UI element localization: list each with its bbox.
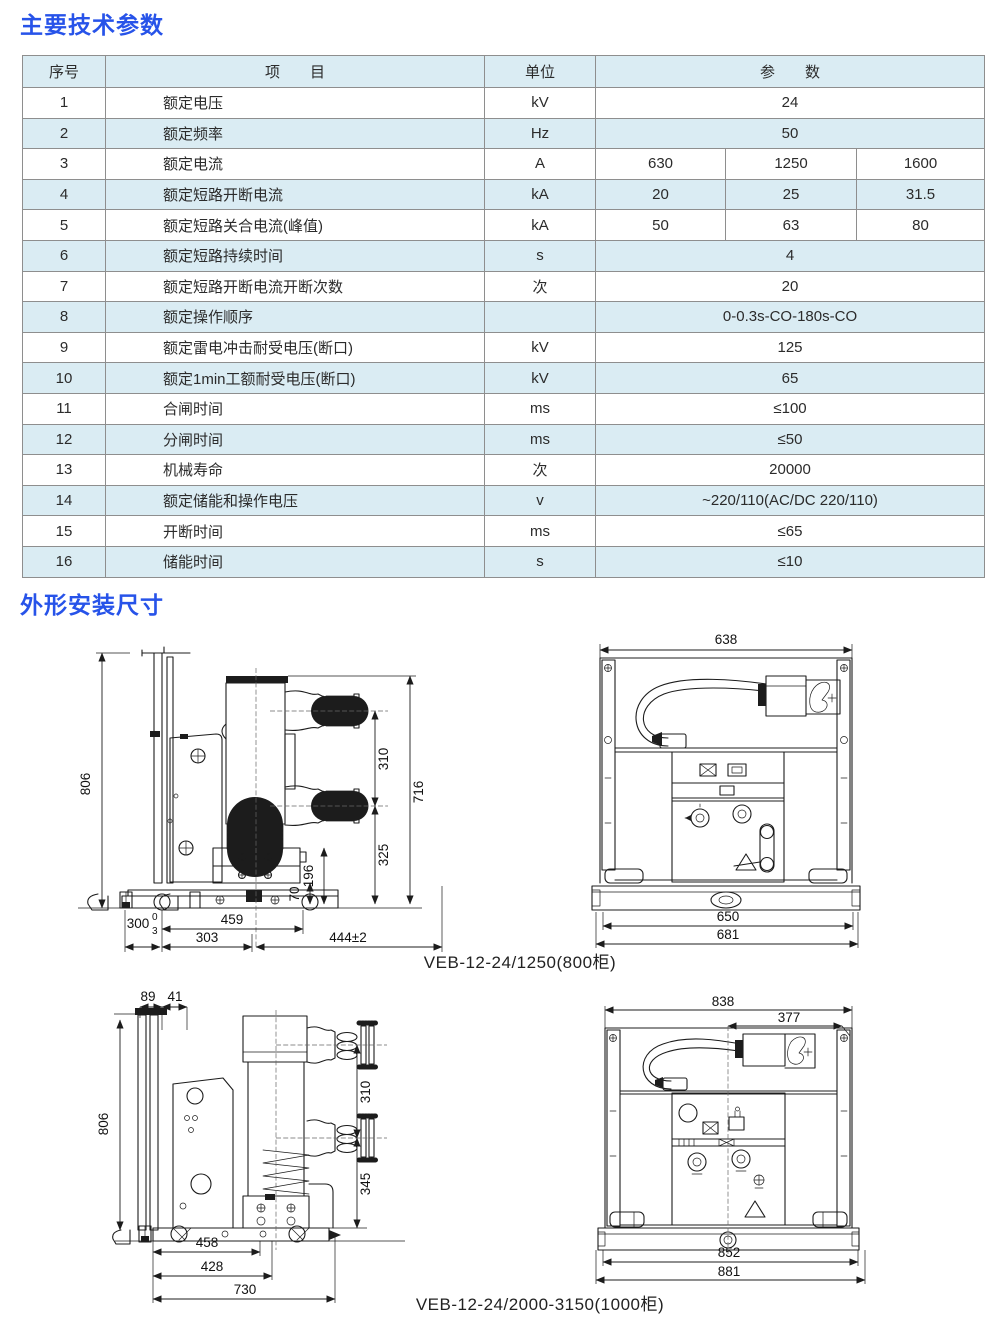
cell-value: 0-0.3s-CO-180s-CO [596,302,985,333]
cell-unit: Hz [485,118,596,149]
cell-unit: kV [485,363,596,394]
drawing-side-view-800: 806 310 325 716 196 70 459 303 444±2 300… [70,626,540,958]
cell-value: 125 [596,332,985,363]
cell-value: 50 [596,210,726,241]
cell-no: 7 [23,271,106,302]
cell-item: 开断时间 [106,516,485,547]
cell-unit: kA [485,210,596,241]
dim-label: 838 [712,996,735,1009]
cell-no: 11 [23,393,106,424]
cell-unit: v [485,485,596,516]
table-row: 14 额定储能和操作电压 v ~220/110(AC/DC 220/110) [23,485,985,516]
cell-unit: 次 [485,271,596,302]
cell-value: 4 [596,240,985,271]
cell-value: 31.5 [857,179,985,210]
cell-no: 14 [23,485,106,516]
dim-tolerance-bottom: 3 [152,926,158,937]
dim-label: 41 [167,989,182,1004]
cell-no: 9 [23,332,106,363]
dim-label: 345 [358,1173,373,1196]
table-row: 9 额定雷电冲击耐受电压(断口) kV 125 [23,332,985,363]
dim-label: 881 [718,1264,741,1279]
table-row: 12 分闸时间 ms ≤50 [23,424,985,455]
drawing-side-view-1000: 89 41 806 310 345 458 428 730 [95,988,480,1306]
cell-no: 2 [23,118,106,149]
table-row: 11 合闸时间 ms ≤100 [23,393,985,424]
cell-unit: kA [485,179,596,210]
cell-value: 50 [596,118,985,149]
dim-label: 310 [376,748,391,771]
drawing-caption-800: VEB-12-24/1250(800柜) [330,948,710,973]
table-row: 2 额定频率 Hz 50 [23,118,985,149]
cell-no: 5 [23,210,106,241]
table-row: 3 额定电流 A 630 1250 1600 [23,149,985,180]
dim-label: 428 [201,1259,224,1274]
section-title-parameters: 主要技术参数 [20,6,164,40]
breaker-side-outline [88,647,359,910]
drawing-front-view-800: 638 650 681 [588,628,918,958]
table-row: 16 储能时间 s ≤10 [23,546,985,577]
cell-no: 12 [23,424,106,455]
dimension-lines: 838 377 852 881 [596,996,865,1284]
cell-item: 额定短路持续时间 [106,240,485,271]
cell-item: 额定操作顺序 [106,302,485,333]
header-no: 序号 [23,56,106,88]
cell-value: 20 [596,179,726,210]
cell-value: 20 [596,271,985,302]
cell-value: ~220/110(AC/DC 220/110) [596,485,985,516]
dim-label: 716 [411,781,426,804]
dim-label: 310 [358,1081,373,1104]
cell-no: 1 [23,88,106,119]
dim-label: 377 [778,1010,801,1025]
table-row: 13 机械寿命 次 20000 [23,455,985,486]
cell-value: 65 [596,363,985,394]
cell-unit: A [485,149,596,180]
dim-label: 650 [717,909,740,924]
cell-value: 80 [857,210,985,241]
table-row: 5 额定短路关合电流(峰值) kA 50 63 80 [23,210,985,241]
cell-value: 1600 [857,149,985,180]
table-row: 10 额定1min工额耐受电压(断口) kV 65 [23,363,985,394]
cell-item: 额定频率 [106,118,485,149]
cell-item: 额定1min工额耐受电压(断口) [106,363,485,394]
cabinet-front-outline [598,1028,859,1250]
dim-label: 89 [140,989,155,1004]
dim-label: 303 [196,930,219,945]
cell-item: 额定短路开断电流 [106,179,485,210]
cell-unit: s [485,240,596,271]
dim-label: 196 [301,865,316,888]
cell-unit [485,302,596,333]
cell-value: 63 [726,210,857,241]
cell-item: 机械寿命 [106,455,485,486]
dim-label: 681 [717,927,740,942]
header-param: 参 数 [596,56,985,88]
cell-item: 额定短路开断电流开断次数 [106,271,485,302]
cell-unit: 次 [485,455,596,486]
cell-unit: kV [485,88,596,119]
parameters-table: 序号 项 目 单位 参 数 1 额定电压 kV 24 2 额定频率 Hz 50 … [22,55,985,578]
cell-value: ≤65 [596,516,985,547]
dim-label: 806 [96,1113,111,1136]
dim-label: 300 [127,916,150,931]
dim-label: 325 [376,844,391,867]
cell-item: 额定雷电冲击耐受电压(断口) [106,332,485,363]
cell-no: 13 [23,455,106,486]
cell-value: ≤100 [596,393,985,424]
cell-value: 25 [726,179,857,210]
dim-label: 638 [715,632,738,647]
cell-no: 3 [23,149,106,180]
header-item: 项 目 [106,56,485,88]
header-unit: 单位 [485,56,596,88]
dim-tolerance-top: 0 [152,912,158,923]
cell-value: 630 [596,149,726,180]
cell-no: 4 [23,179,106,210]
cell-value: ≤50 [596,424,985,455]
cell-no: 8 [23,302,106,333]
cabinet-front-outline [592,658,860,910]
cell-value: ≤10 [596,546,985,577]
cell-no: 16 [23,546,106,577]
cell-item: 额定储能和操作电压 [106,485,485,516]
cell-item: 合闸时间 [106,393,485,424]
cell-unit: ms [485,424,596,455]
dim-label: 852 [718,1245,741,1260]
cell-item: 储能时间 [106,546,485,577]
cell-no: 6 [23,240,106,271]
drawing-caption-1000: VEB-12-24/2000-3150(1000柜) [320,1290,760,1315]
cell-item: 额定电压 [106,88,485,119]
table-row: 7 额定短路开断电流开断次数 次 20 [23,271,985,302]
cell-unit: s [485,546,596,577]
cell-item: 额定电流 [106,149,485,180]
dim-label: 444±2 [329,930,366,945]
cell-unit: ms [485,393,596,424]
cell-no: 10 [23,363,106,394]
table-header-row: 序号 项 目 单位 参 数 [23,56,985,88]
cell-value: 24 [596,88,985,119]
table-row: 15 开断时间 ms ≤65 [23,516,985,547]
cell-unit: ms [485,516,596,547]
cell-item: 分闸时间 [106,424,485,455]
cell-item: 额定短路关合电流(峰值) [106,210,485,241]
cell-value: 20000 [596,455,985,486]
drawing-front-view-1000: 838 377 852 881 [593,996,928,1298]
dim-label: 806 [78,773,93,796]
cell-value: 1250 [726,149,857,180]
cell-no: 15 [23,516,106,547]
table-row: 4 额定短路开断电流 kA 20 25 31.5 [23,179,985,210]
dim-label: 730 [234,1282,257,1297]
cell-unit: kV [485,332,596,363]
dim-label: 70 [287,886,302,901]
table-row: 6 额定短路持续时间 s 4 [23,240,985,271]
dim-label: 459 [221,912,244,927]
section-title-dimensions: 外形安装尺寸 [20,586,164,620]
dim-label: 458 [196,1235,219,1250]
table-row: 8 额定操作顺序 0-0.3s-CO-180s-CO [23,302,985,333]
breaker-side-outline [113,1008,377,1244]
table-row: 1 额定电压 kV 24 [23,88,985,119]
